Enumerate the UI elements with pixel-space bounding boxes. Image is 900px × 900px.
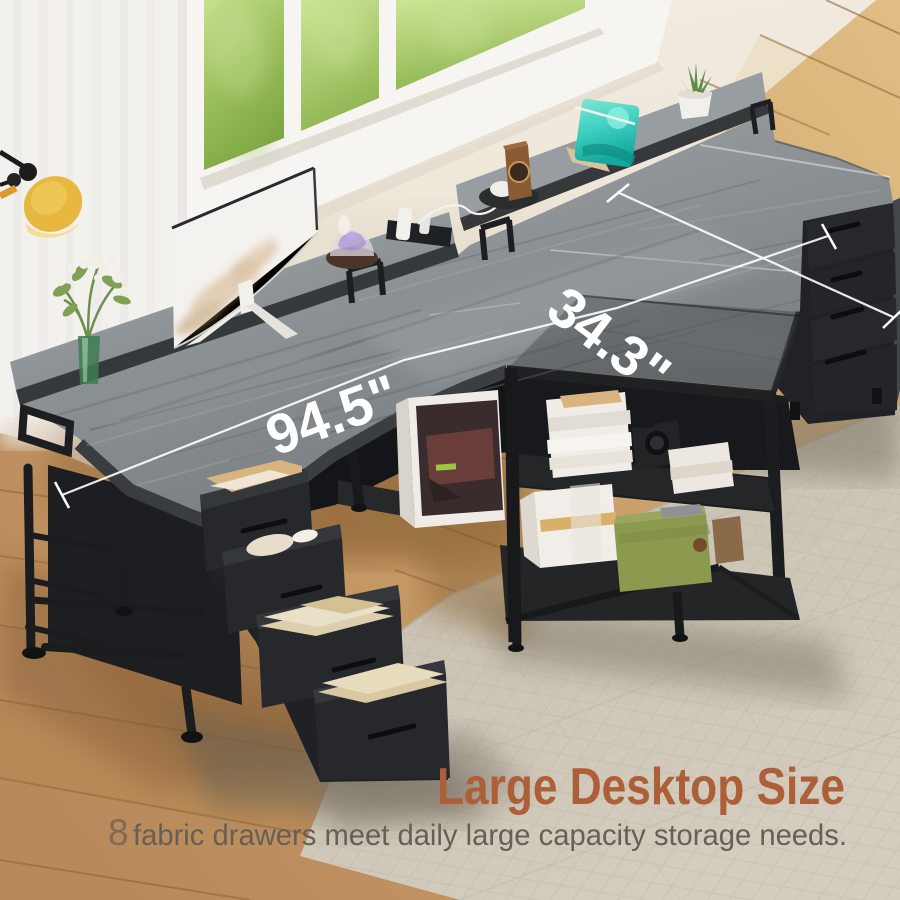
svg-text:Large Desktop Size: Large Desktop Size [437,758,845,816]
svg-text:8: 8 [108,812,129,853]
svg-text:fabric drawers meet daily larg: fabric drawers meet daily large capacity… [133,819,847,852]
